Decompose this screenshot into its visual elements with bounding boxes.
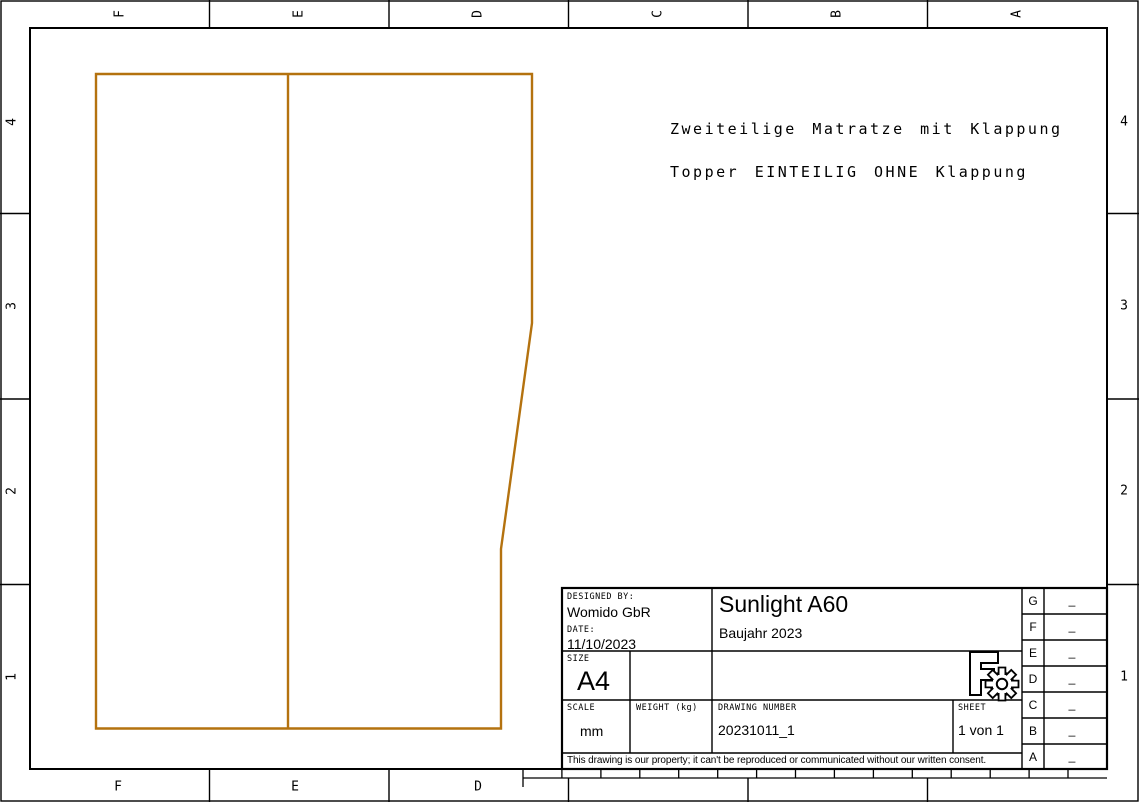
zone-ticks-right: [1107, 214, 1139, 585]
zone-label-left-1: 1: [6, 673, 19, 681]
revision-value-c: _: [1069, 698, 1076, 710]
designed-by-value: Womido GbR: [567, 605, 651, 619]
graduation-ruler: [523, 769, 1107, 787]
date-value: 11/10/2023: [567, 637, 636, 651]
zone-label-right-2: 2: [1120, 485, 1128, 498]
zone-label-top-a: A: [1011, 10, 1024, 18]
designed-by-label: DESIGNED BY:: [567, 593, 634, 602]
zone-label-top-e: E: [293, 10, 306, 18]
zone-label-left-4: 4: [6, 118, 19, 126]
zone-label-bottom-f: F: [114, 781, 122, 794]
zone-label-right-3: 3: [1120, 300, 1128, 313]
revision-value-d: _: [1069, 672, 1076, 684]
zone-label-top-f: F: [114, 10, 127, 18]
revision-zone-b: B: [1029, 725, 1037, 737]
revision-zone-c: C: [1029, 699, 1038, 711]
zone-label-bottom-d: D: [474, 781, 482, 794]
scale-value: mm: [580, 724, 603, 738]
note-line-1: Zweiteilige Matratze mit Klappung: [670, 120, 1063, 138]
size-value: A4: [577, 668, 610, 695]
zone-label-top-b: B: [831, 10, 844, 18]
revision-zone-f: F: [1029, 621, 1036, 633]
part-outline-group: [96, 74, 532, 729]
revision-zone-g: G: [1028, 595, 1037, 607]
revision-value-f: _: [1069, 620, 1076, 632]
freecad-gear-logo-icon: [970, 652, 1019, 701]
zone-ticks-bottom: [210, 769, 928, 802]
zone-ticks-left: [0, 214, 30, 585]
scale-label: SCALE: [567, 704, 595, 713]
zone-label-top-c: C: [652, 10, 665, 18]
revision-value-e: _: [1069, 646, 1076, 658]
zone-label-right-4: 4: [1120, 116, 1128, 129]
revision-zone-a: A: [1029, 751, 1037, 763]
revision-zone-d: D: [1029, 673, 1038, 685]
zone-ticks-top: [210, 0, 928, 28]
disclaimer-text: This drawing is our property; it can't b…: [567, 756, 986, 766]
zone-label-top-d: D: [472, 10, 485, 18]
part-outline: [96, 74, 532, 729]
note-line-2: Topper EINTEILIG OHNE Klappung: [670, 163, 1028, 181]
zone-label-left-3: 3: [6, 302, 19, 310]
revision-zone-e: E: [1029, 647, 1037, 659]
sheet-label: SHEET: [958, 704, 986, 713]
drawing-number-value: 20231011_1: [718, 723, 795, 737]
revision-value-g: _: [1069, 594, 1076, 606]
size-label: SIZE: [567, 655, 589, 664]
revision-value-b: _: [1069, 724, 1076, 736]
sheet-value: 1 von 1: [958, 723, 1004, 737]
revision-value-a: _: [1069, 750, 1076, 762]
weight-label: WEIGHT (kg): [636, 704, 698, 713]
drawing-number-label: DRAWING NUMBER: [718, 704, 797, 713]
zone-label-bottom-e: E: [291, 781, 299, 794]
drawing-sheet: F E D C B A F E D 4 3 2 1 4 3 2 1 Zweite…: [0, 0, 1139, 802]
date-label: DATE:: [567, 626, 595, 635]
drawing-subtitle: Baujahr 2023: [719, 626, 802, 640]
zone-label-left-2: 2: [6, 487, 19, 495]
zone-label-right-1: 1: [1120, 671, 1128, 684]
drawing-title: Sunlight A60: [719, 593, 848, 616]
